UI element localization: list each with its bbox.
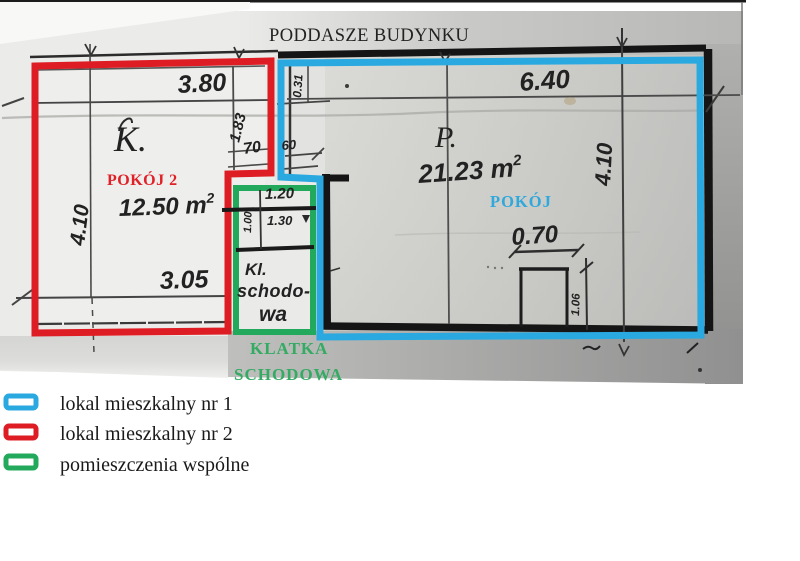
svg-text:0.31: 0.31 <box>290 74 306 99</box>
svg-text:lokal mieszkalny nr 2: lokal mieszkalny nr 2 <box>60 423 233 445</box>
svg-text:4.10: 4.10 <box>590 141 617 187</box>
svg-text:Kl.: Kl. <box>245 260 267 279</box>
svg-text:POKÓJ: POKÓJ <box>490 192 552 211</box>
svg-text:1.00: 1.00 <box>242 210 255 233</box>
svg-text:SCHODOWA: SCHODOWA <box>234 365 343 384</box>
svg-text:P.: P. <box>434 121 457 154</box>
svg-text:lokal mieszkalny nr 1: lokal mieszkalny nr 1 <box>60 393 233 415</box>
svg-text:1.20: 1.20 <box>265 185 295 203</box>
svg-text:wa: wa <box>259 303 287 326</box>
svg-text:pomieszczenia wspólne: pomieszczenia wspólne <box>60 454 249 476</box>
svg-text:POKÓJ 2: POKÓJ 2 <box>107 170 178 189</box>
svg-text:0.70: 0.70 <box>511 221 560 251</box>
svg-text:12.50 m2: 12.50 m2 <box>118 190 215 222</box>
svg-text:3.80: 3.80 <box>177 68 227 99</box>
svg-text:KLATKA: KLATKA <box>250 339 328 358</box>
svg-text:60: 60 <box>281 137 297 153</box>
svg-text:70: 70 <box>242 139 262 158</box>
svg-text:3.05: 3.05 <box>159 265 210 295</box>
svg-text:schodo-: schodo- <box>237 281 311 301</box>
svg-text:6.40: 6.40 <box>518 63 571 96</box>
svg-text:1.06: 1.06 <box>570 293 583 316</box>
svg-text:PODDASZE BUDYNKU: PODDASZE BUDYNKU <box>269 26 469 46</box>
svg-text:1.30: 1.30 <box>267 213 293 228</box>
svg-text:K.: K. <box>113 119 147 159</box>
